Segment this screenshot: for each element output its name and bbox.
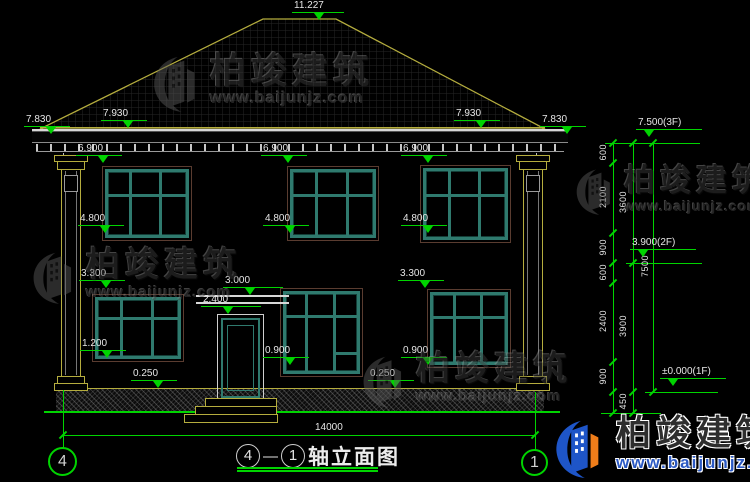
elevation-marker-win2-top-mid: 6.900 <box>261 143 307 163</box>
window-transom <box>286 315 357 318</box>
elevation-value: 3.300 <box>398 268 444 279</box>
elevation-triangle-icon <box>100 226 110 233</box>
watermark-site: www.baijunjz.com <box>616 453 750 473</box>
elevation-triangle-icon <box>644 130 654 137</box>
elevation-value: 6.900 <box>76 143 122 154</box>
elevation-triangle-icon <box>123 121 133 128</box>
elevation-triangle-icon <box>476 121 486 128</box>
elevation-marker-win1-left-sill: 1.200 <box>80 338 126 358</box>
window-mullion <box>448 171 451 237</box>
elevation-value: 6.900 <box>261 143 307 154</box>
elevation-triangle-icon <box>223 307 233 314</box>
elevation-triangle-icon <box>285 358 295 365</box>
entrance-step-3 <box>184 414 278 423</box>
elevation-triangle-icon <box>283 156 293 163</box>
elevation-marker-win2-top-right: 6.900 <box>401 143 447 163</box>
elevation-triangle-icon <box>668 379 678 386</box>
elevation-marker-eave-inner-right: 7.930 <box>454 108 500 128</box>
elevation-marker-win2-sill-mid: 4.800 <box>263 213 309 233</box>
baijun-logo-icon <box>546 416 608 480</box>
elevation-triangle-icon <box>102 351 112 358</box>
elevation-marker-1f: ±0.000(1F) <box>660 366 726 386</box>
watermark-site: www.baijunjz.com <box>624 198 750 214</box>
elevation-value: 0.250 <box>131 368 177 379</box>
elevation-marker-ridge: 11.227 <box>292 0 344 20</box>
window-transom <box>98 317 178 320</box>
elevation-triangle-icon <box>314 13 324 20</box>
eave-cornice <box>32 129 568 143</box>
elevation-triangle-icon <box>153 381 163 388</box>
watermark-site: www.baijunjz.com <box>416 388 572 405</box>
elevation-marker-win2-sill-right: 4.800 <box>401 213 447 233</box>
elevation-value: 3.900(2F) <box>630 237 696 248</box>
baijun-logo-icon <box>570 165 616 217</box>
elevation-value: 4.800 <box>401 213 447 224</box>
elevation-value: 7.930 <box>101 108 147 119</box>
elevation-drawing-canvas: 11.227 7.830 7.930 7.930 7.830 6.900 6.9… <box>0 0 750 482</box>
pilaster-left-plinth <box>54 383 88 391</box>
elevation-marker-win1-top-right: 3.300 <box>398 268 444 288</box>
watermark-top-center: 柏竣建筑 www.baijunjz.com <box>146 52 374 114</box>
title-axis-circle-1: 1 <box>281 444 305 468</box>
window-mullion <box>159 172 162 235</box>
entrance-door-panel <box>227 325 254 391</box>
elevation-value: 0.900 <box>263 345 309 356</box>
window-mullion <box>346 172 349 235</box>
ground-line <box>44 411 560 413</box>
axis-bubble-4: 4 <box>48 447 77 476</box>
watermark-bottom-center: 柏竣建筑 www.baijunjz.com <box>356 352 572 410</box>
pilaster-right-panel <box>526 175 540 192</box>
overall-width-value: 14000 <box>315 422 343 433</box>
watermark-brand: 柏竣建筑 <box>86 248 242 284</box>
window-mullion <box>478 171 481 237</box>
title-underline <box>237 467 378 472</box>
elevation-value: 7.830 <box>24 114 70 125</box>
elevation-marker-2f: 3.900(2F) <box>630 237 696 257</box>
dim-value: 900 <box>598 368 608 385</box>
elevation-triangle-icon <box>562 127 572 134</box>
elevation-value: 11.227 <box>292 0 344 11</box>
level-line-2f <box>626 263 702 264</box>
elevation-value: ±0.000(1F) <box>660 366 726 377</box>
window-transom <box>293 194 373 197</box>
elevation-triangle-icon <box>285 226 295 233</box>
title-axis-circle-4: 4 <box>236 444 260 468</box>
window-transom <box>426 194 505 197</box>
elevation-triangle-icon <box>98 156 108 163</box>
watermark-site: www.baijunjz.com <box>210 90 374 108</box>
window-mullion <box>151 300 154 356</box>
watermark-brand: 柏竣建筑 <box>210 52 374 90</box>
elevation-marker-win2-sill-left: 4.800 <box>78 213 124 233</box>
window-mullion <box>315 172 318 235</box>
elevation-marker-eave-outer-right: 7.830 <box>540 114 586 134</box>
watermark-brand: 柏竣建筑 <box>624 165 750 198</box>
level-line-1f <box>645 392 718 393</box>
elevation-marker-plinth-left: 0.250 <box>131 368 177 388</box>
watermark-left-middle: 柏竣建筑 www.baijunjz.com <box>26 248 242 306</box>
dim-value: 600 <box>598 144 608 161</box>
elevation-marker-eave-outer-left: 7.830 <box>24 114 70 134</box>
axis-bubble-1: 1 <box>521 449 548 476</box>
watermark-right-middle: 柏竣建筑 www.baijunjz.com <box>570 165 750 217</box>
title-separator: — <box>263 448 278 465</box>
elevation-triangle-icon <box>420 281 430 288</box>
overall-dim-line <box>63 435 535 436</box>
elevation-value: 4.800 <box>263 213 309 224</box>
window-transom <box>108 194 186 197</box>
elevation-value: 6.900 <box>401 143 447 154</box>
elevation-marker-3f: 7.500(3F) <box>636 117 702 137</box>
axis-number: 1 <box>530 454 539 471</box>
dim-value: 900 <box>598 239 608 256</box>
watermark-brand: 柏竣建筑 <box>616 416 750 453</box>
axis-number: 4 <box>58 453 67 470</box>
baijun-logo-icon <box>356 352 408 410</box>
watermark-brand: 柏竣建筑 <box>416 352 572 388</box>
watermark-site: www.baijunjz.com <box>86 284 242 301</box>
elevation-value: 1.200 <box>80 338 126 349</box>
watermark-bottom-right-logo: 柏竣建筑 www.baijunjz.com <box>546 416 750 480</box>
window-mullion <box>333 294 336 371</box>
pilaster-right-shaft <box>523 169 543 377</box>
elevation-value: 7.830 <box>540 114 586 125</box>
elevation-marker-eave-inner-left: 7.930 <box>101 108 147 128</box>
elevation-value: 7.500(3F) <box>636 117 702 128</box>
elevation-value: 7.930 <box>454 108 500 119</box>
window-transom <box>433 316 505 319</box>
elevation-triangle-icon <box>423 156 433 163</box>
baijun-logo-icon <box>26 248 78 306</box>
dim-value: 3900 <box>618 315 628 337</box>
elevation-value: 4.800 <box>78 213 124 224</box>
elevation-marker-win2-top-left: 6.900 <box>76 143 122 163</box>
dim-value-total: 7500 <box>640 255 650 277</box>
window-mullion <box>129 172 132 235</box>
elevation-triangle-icon <box>46 127 56 134</box>
window-rail <box>334 352 357 355</box>
elevation-triangle-icon <box>638 250 648 257</box>
dim-value: 600 <box>598 264 608 281</box>
dim-value: 450 <box>618 393 628 410</box>
dim-value: 2400 <box>598 310 608 332</box>
elevation-triangle-icon <box>423 226 433 233</box>
extension-line-left <box>63 390 64 448</box>
pilaster-left-panel <box>64 175 78 192</box>
baijun-logo-icon <box>146 52 202 114</box>
elevation-marker-win1-sill-mid: 0.900 <box>263 345 309 365</box>
